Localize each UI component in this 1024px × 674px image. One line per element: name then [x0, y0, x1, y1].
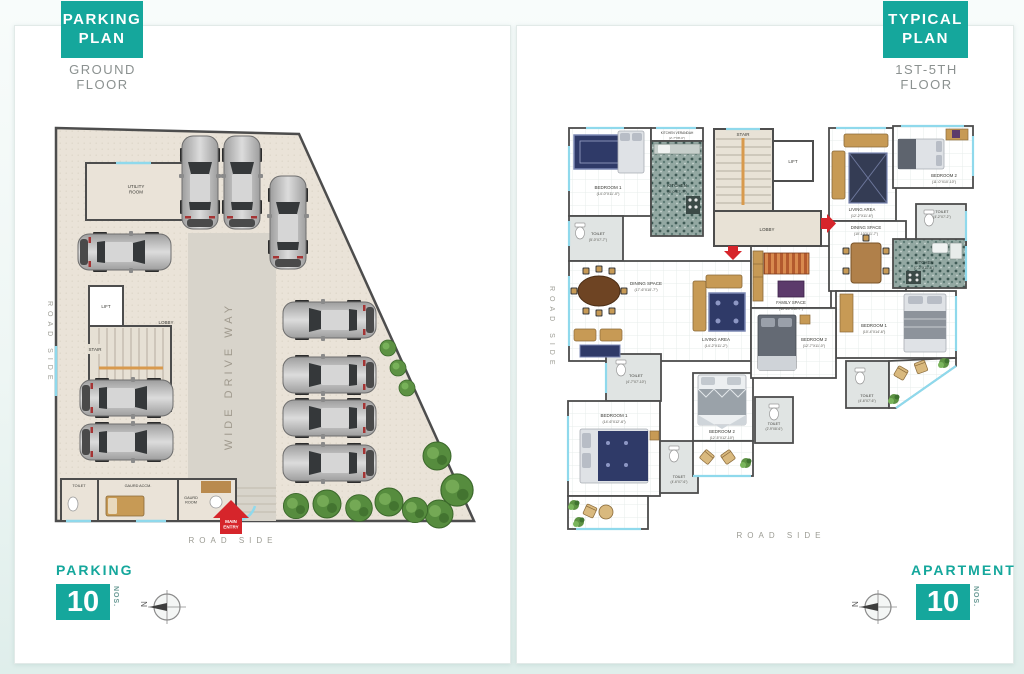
room-dims: (12'-2"X11'-6") [851, 214, 873, 218]
room-dims: (11'-0"X10'-10") [932, 180, 956, 184]
entry-arrow-a-icon [724, 246, 742, 260]
room-dims: (12'-7"X11'-0") [803, 344, 825, 348]
parking-footer-label: PARKING [56, 562, 134, 578]
guard-accm-label: GAURD ACCM. [125, 484, 152, 488]
room-label: TOILET [768, 422, 781, 426]
room-dims: (10'-4"X14'-6") [863, 330, 886, 334]
car [283, 299, 376, 341]
room-dims: (14'-0"X11'-0") [597, 192, 620, 196]
guard-bed-pillow [108, 498, 117, 514]
room-label: TOILET [673, 475, 686, 479]
guard-room-sink-icon [210, 496, 222, 508]
car [283, 397, 376, 439]
road-side-bottom-label: ROAD SIDE [736, 531, 825, 540]
typical-subtitle: 1ST-5TH FLOOR [869, 62, 984, 92]
apartment-count: 10 [916, 584, 970, 620]
room-label: DINING SPACE [630, 281, 662, 286]
room-dims: (5'-0"X7'-7") [589, 238, 607, 242]
car [283, 354, 376, 396]
lobby-label: LOBBY [158, 320, 173, 325]
room-dims: (10'-10"X11'-7") [854, 232, 878, 236]
room-dims: (14'-6"X12'-6") [602, 420, 625, 424]
room-label: BEDROOM 1 [861, 323, 887, 328]
car [283, 442, 376, 484]
room-label: TOILET [591, 231, 605, 236]
core-stair-label: STAIR [737, 132, 751, 137]
dining-table-icon [851, 243, 881, 283]
parking-subtitle: GROUND FLOOR [45, 62, 160, 92]
room-label: BEDROOM 1 [600, 413, 628, 418]
road-side-bottom-label: ROAD SIDE [188, 536, 277, 545]
room-label: KITCHEN [915, 260, 934, 265]
room-dims: (8'-0"X7'-7") [667, 190, 686, 194]
toilet-label: TOILET [72, 484, 86, 488]
room-dims: (2'-7"X8'-0") [669, 136, 685, 140]
sofa-icon [693, 281, 706, 331]
rug-icon [709, 293, 745, 331]
parking-panel: PARKING PLAN GROUND FLOOR [14, 25, 511, 664]
north-compass-icon: N [139, 587, 187, 627]
guard-room-counter [201, 481, 231, 493]
room-label: TOILET [629, 373, 643, 378]
core-lift-label: LIFT [788, 159, 798, 164]
road-side-left-label: ROAD SIDE [548, 286, 555, 370]
car [80, 377, 173, 419]
typical-plan-tag: TYPICAL PLAN [883, 1, 968, 58]
room-dims: (7'-2"X11'-6") [914, 266, 934, 270]
drive-way-label: WIDE DRIVE WAY [223, 302, 235, 450]
main-entry-label: MAINENTRY [223, 519, 238, 530]
sofa-icon [844, 134, 888, 147]
room-label: LIVING AREA [702, 337, 730, 342]
parking-count-unit: NOS. [112, 586, 119, 607]
room-label: KITCHEN VERANDAH [661, 131, 694, 135]
room-label: TOILET [860, 394, 874, 398]
core-lobby-label: LOBBY [759, 227, 774, 232]
parking-plan-tag: PARKING PLAN [61, 1, 143, 58]
car [78, 231, 171, 273]
core: STAIR LIFT LOBBY [714, 129, 836, 260]
compass-letter: N [140, 601, 149, 607]
room-label: BEDROOM 2 [709, 429, 735, 434]
parking-tag-line2: PLAN [79, 30, 126, 49]
parking-tag-line1: PARKING [63, 11, 142, 30]
car [179, 136, 221, 229]
apartment-plan-drawing: STAIR LIFT LOBBY [546, 101, 996, 546]
apartment-footer-label: APARTMENT [911, 562, 1016, 578]
room-dims: (10'-10"X10'-7") [779, 307, 803, 311]
room-label: KITCHEN [667, 183, 687, 188]
compass-letter: N [851, 601, 860, 607]
toilet-wc-icon [68, 497, 78, 511]
room-dims: (2'-9"X8'-6") [766, 427, 783, 431]
parking-count: 10 [56, 584, 110, 620]
guard-room-label: GAURDROOM [184, 496, 198, 505]
room-label: LIVING AREA [849, 207, 876, 212]
curtain-icon [764, 253, 809, 274]
room-label: FAMILY SPACE [776, 300, 806, 305]
room-label: TOILET [935, 210, 949, 214]
car [267, 176, 309, 269]
road-side-left-label: ROAD SIDE [46, 301, 53, 385]
car [80, 421, 173, 463]
utility-room-label: UTILITYROOM [128, 184, 145, 194]
north-compass-icon: N [850, 587, 898, 627]
car [221, 136, 263, 229]
room-label: BEDROOM 1 [594, 185, 622, 190]
room-dims: (12'-5"X12'-10") [710, 436, 734, 440]
apartment-count-unit: NOS. [972, 586, 979, 607]
page: PARKING PLAN GROUND FLOOR [0, 0, 1024, 674]
lift-label: LIFT [101, 304, 111, 309]
dining-table-icon [578, 276, 620, 306]
room-dims: (4'-7"X7'-10") [626, 380, 646, 384]
room-dims: (17'-6"X10'-7") [634, 288, 657, 292]
typical-tag-line1: TYPICAL [888, 11, 963, 30]
room-label: DINING SPACE [851, 225, 882, 230]
room-dims: (14'-2"X11'-2") [705, 344, 728, 348]
apartment-panel: TYPICAL PLAN 1ST-5TH FLOOR [516, 25, 1014, 664]
typical-tag-line2: PLAN [902, 30, 949, 49]
stair-label: STAIR [89, 347, 103, 352]
room-label: BEDROOM 2 [931, 173, 957, 178]
room-dims: (4'-6"X7'-6") [858, 399, 876, 403]
room-dims: (4'-6"X7'-6") [671, 480, 688, 484]
room-label: BEDROOM 2 [801, 337, 827, 342]
parking-plan-drawing: WIDE DRIVE WAY UTILITYROOM LIFT STAIR LO… [41, 106, 486, 556]
room-dims: (4'-2"X7'-2") [933, 215, 951, 219]
